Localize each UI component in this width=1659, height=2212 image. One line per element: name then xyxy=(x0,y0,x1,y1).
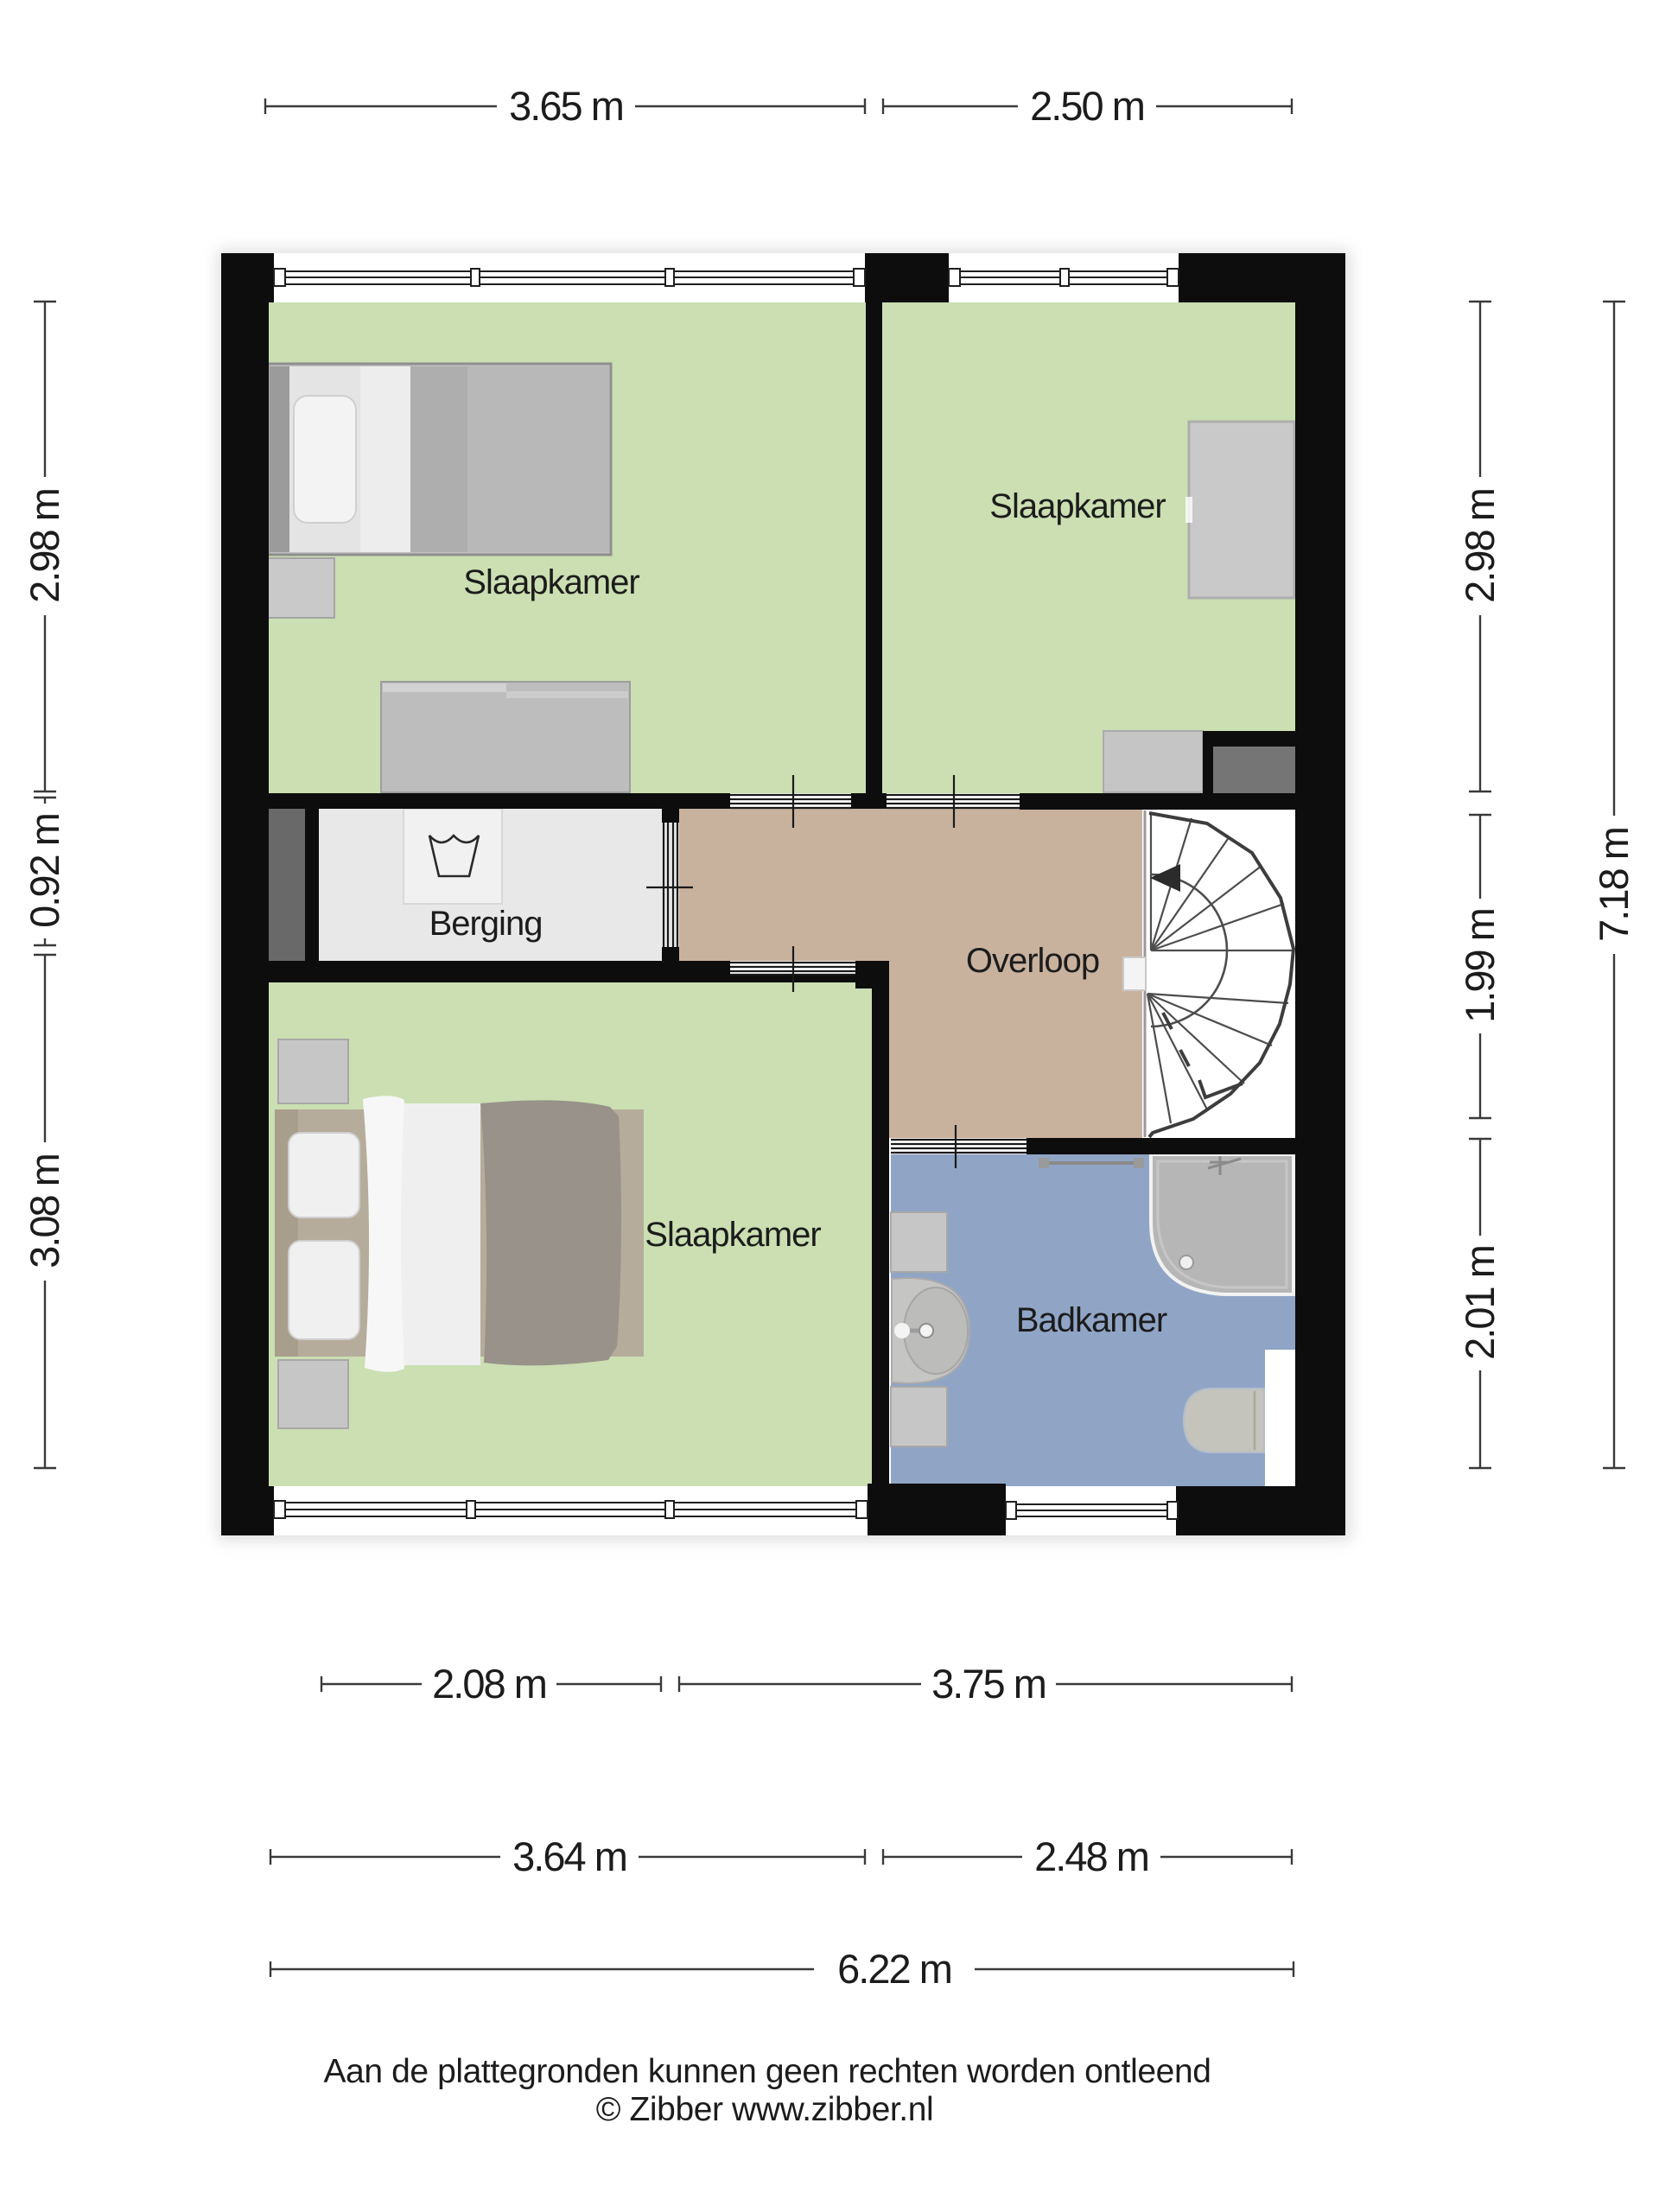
svg-text:Slaapkamer: Slaapkamer xyxy=(989,487,1166,525)
svg-text:7.18 m: 7.18 m xyxy=(1591,828,1637,942)
svg-text:1.99 m: 1.99 m xyxy=(1457,909,1503,1023)
svg-text:3.08 m: 3.08 m xyxy=(22,1154,67,1268)
svg-text:Slaapkamer: Slaapkamer xyxy=(463,563,639,601)
svg-text:3.64 m: 3.64 m xyxy=(512,1834,626,1879)
svg-text:3.65 m: 3.65 m xyxy=(509,83,623,129)
svg-text:2.98 m: 2.98 m xyxy=(22,489,67,603)
svg-text:3.75 m: 3.75 m xyxy=(931,1661,1046,1707)
svg-text:© Zibber www.zibber.nl: © Zibber www.zibber.nl xyxy=(596,2091,934,2128)
svg-text:Slaapkamer: Slaapkamer xyxy=(645,1216,821,1254)
svg-text:Aan de plattegronden kunnen ge: Aan de plattegronden kunnen geen rechten… xyxy=(323,2053,1211,2090)
svg-text:6.22 m: 6.22 m xyxy=(837,1946,951,1992)
svg-text:2.98 m: 2.98 m xyxy=(1457,489,1503,603)
svg-text:2.50 m: 2.50 m xyxy=(1030,83,1144,129)
svg-text:2.01 m: 2.01 m xyxy=(1457,1246,1503,1360)
svg-text:2.48 m: 2.48 m xyxy=(1034,1834,1148,1879)
svg-text:Berging: Berging xyxy=(429,905,543,943)
svg-text:Overloop: Overloop xyxy=(966,942,1099,980)
svg-text:2.08 m: 2.08 m xyxy=(432,1661,546,1707)
svg-text:Badkamer: Badkamer xyxy=(1016,1301,1167,1339)
svg-text:0.92 m: 0.92 m xyxy=(22,814,67,928)
